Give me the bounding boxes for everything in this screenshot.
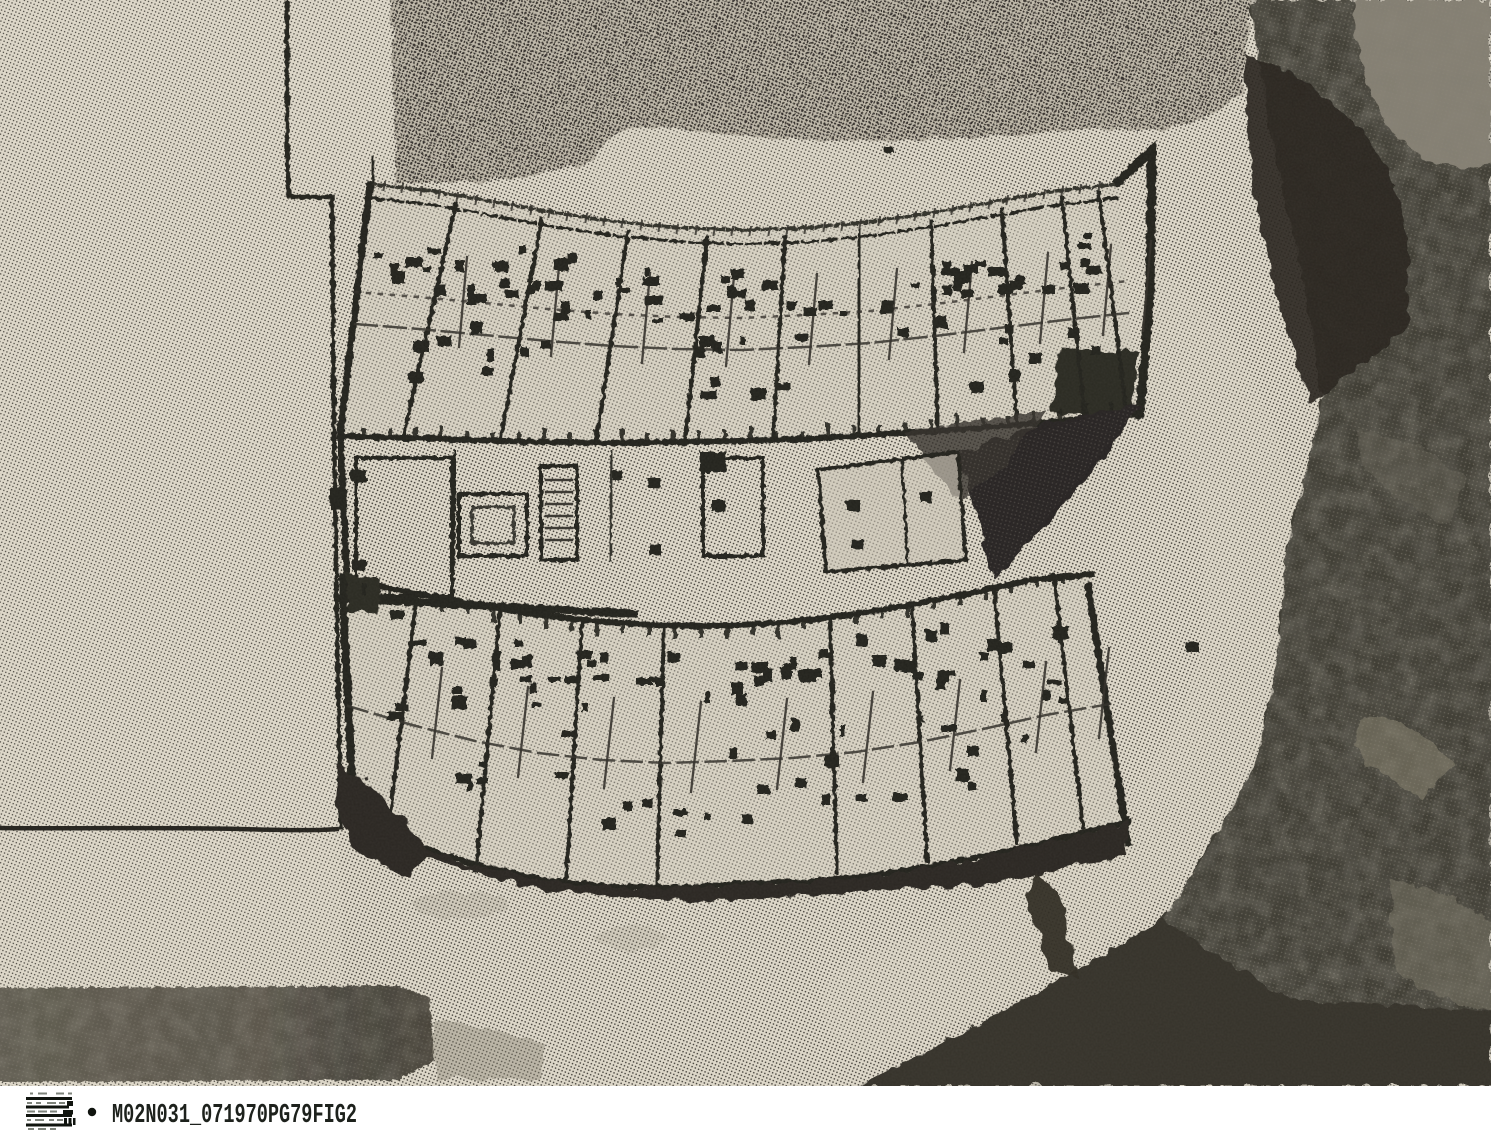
svg-text:M02N031_071970PG79FIG2: M02N031_071970PG79FIG2 [112, 1101, 357, 1131]
